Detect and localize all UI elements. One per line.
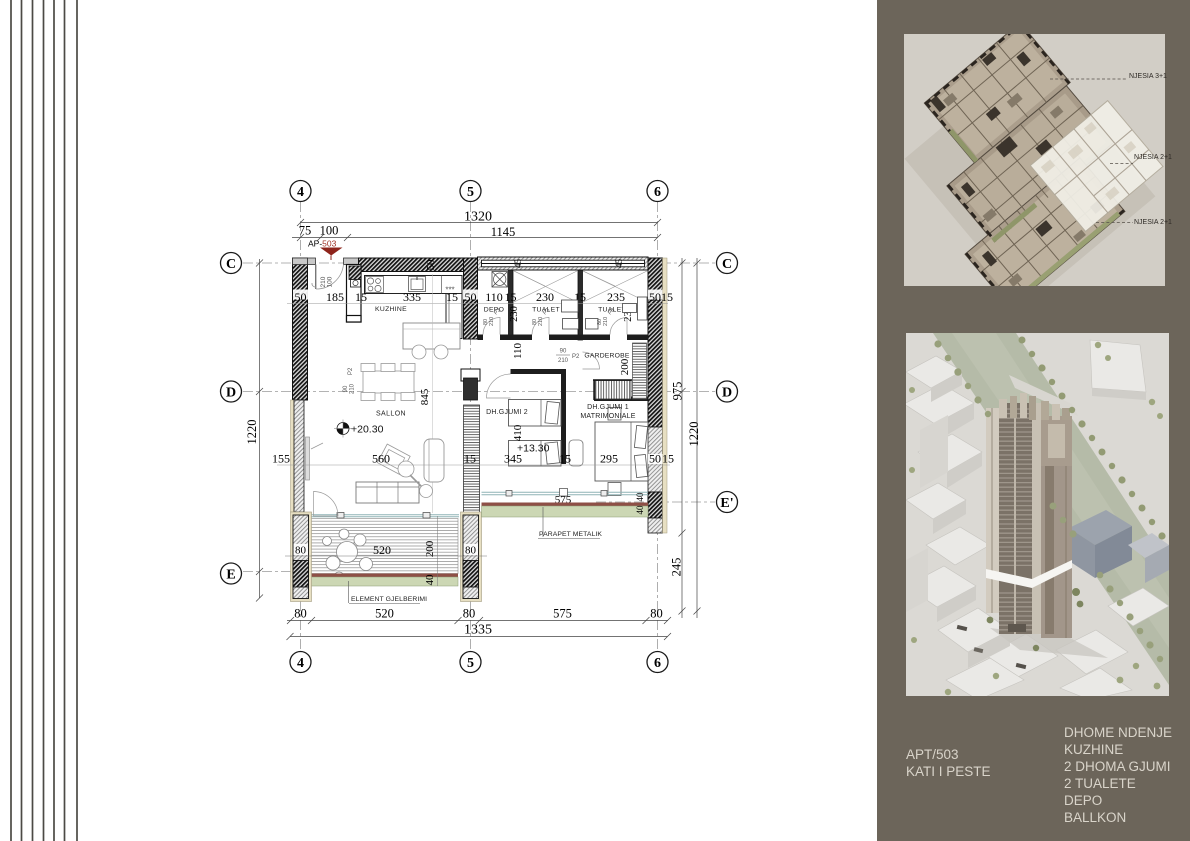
svg-text:560: 560 [372,452,390,466]
svg-text:185: 185 [326,290,344,304]
svg-text:50: 50 [649,452,661,466]
svg-text:40: 40 [424,574,436,586]
svg-text:845: 845 [419,388,431,405]
svg-text:MATRIMONIALE: MATRIMONIALE [580,413,635,420]
svg-text:235: 235 [607,290,625,304]
svg-text:DHOME NDENJE: DHOME NDENJE [1064,725,1172,740]
svg-text:90: 90 [343,385,349,392]
svg-text:6: 6 [654,185,661,200]
svg-text:295: 295 [600,452,618,466]
svg-text:NJESIA 3+1: NJESIA 3+1 [1129,73,1167,80]
svg-text:KUZHINE: KUZHINE [1064,742,1123,757]
svg-text:PARAPET METALIK: PARAPET METALIK [539,531,602,538]
svg-text:80: 80 [465,545,477,557]
svg-text:6: 6 [654,656,661,671]
svg-text:40: 40 [635,492,645,502]
svg-text:4: 4 [297,656,304,671]
svg-text:E': E' [720,496,733,511]
svg-text:50: 50 [425,259,437,271]
svg-text:100: 100 [327,276,334,287]
svg-text:45: 45 [614,259,624,269]
svg-text:D: D [226,386,236,401]
svg-text:ELEMENT GJELBERIMI: ELEMENT GJELBERIMI [351,596,427,603]
svg-text:80: 80 [294,607,307,621]
svg-text:410: 410 [512,424,524,441]
svg-text:210: 210 [603,317,609,326]
svg-text:AP-503: AP-503 [308,239,337,249]
svg-text:80: 80 [295,545,307,557]
svg-text:90: 90 [560,349,567,355]
svg-text:230: 230 [509,306,520,322]
svg-text:230: 230 [536,290,554,304]
svg-text:C: C [226,257,236,272]
svg-text:110: 110 [485,290,503,304]
svg-text:DEPO: DEPO [1064,793,1102,808]
svg-text:210: 210 [558,358,569,364]
svg-text:575: 575 [553,607,572,621]
svg-text:40: 40 [635,505,645,515]
svg-text:200: 200 [424,540,436,557]
svg-text:GARDEROBE: GARDEROBE [584,353,629,360]
svg-text:DH.GJUMI 1: DH.GJUMI 1 [587,404,629,411]
svg-text:KUZHINE: KUZHINE [375,306,407,313]
svg-text:BALLKON: BALLKON [1064,810,1126,825]
svg-text:100: 100 [320,224,339,238]
svg-text:210: 210 [350,383,356,394]
svg-text:75: 75 [299,224,312,238]
svg-text:15: 15 [661,290,673,304]
svg-text:5: 5 [467,656,474,671]
svg-text:50: 50 [295,290,307,304]
svg-text:NJESIA 2+1: NJESIA 2+1 [1134,219,1172,226]
svg-text:P2: P2 [348,367,354,375]
svg-text:SALLON: SALLON [376,411,406,418]
svg-text:NJESIA 2+1: NJESIA 2+1 [1134,154,1172,161]
svg-text:210: 210 [538,317,544,326]
svg-text:50: 50 [649,290,661,304]
svg-text:E: E [226,568,235,583]
svg-text:15: 15 [662,452,674,466]
svg-text:1335: 1335 [464,623,492,638]
svg-text:975: 975 [671,382,685,401]
svg-text:KATI I PESTE: KATI I PESTE [906,764,991,779]
svg-text:80: 80 [463,607,476,621]
svg-text:520: 520 [375,607,394,621]
svg-text:15: 15 [446,290,458,304]
svg-text:110: 110 [512,342,524,359]
svg-text:45: 45 [513,259,523,269]
svg-text:50: 50 [465,290,477,304]
svg-text:P2: P2 [572,354,580,360]
svg-text:1220: 1220 [245,420,259,445]
svg-text:APT/503: APT/503 [906,747,959,762]
svg-text:4: 4 [297,185,304,200]
svg-text:520: 520 [373,543,391,557]
svg-text:80: 80 [650,607,663,621]
svg-text:15: 15 [559,452,571,466]
svg-text:15: 15 [464,452,476,466]
svg-text:15: 15 [355,290,367,304]
svg-text:DH.GJUMI 2: DH.GJUMI 2 [486,409,528,416]
svg-text:D: D [722,386,732,401]
svg-text:200: 200 [619,358,631,375]
svg-text:245: 245 [670,558,684,577]
svg-text:2 DHOMA GJUMI: 2 DHOMA GJUMI [1064,759,1171,774]
svg-text:335: 335 [403,290,421,304]
svg-text:210: 210 [489,317,495,326]
svg-text:5: 5 [467,185,474,200]
svg-text:2 TUALETE: 2 TUALETE [1064,776,1136,791]
svg-text:1220: 1220 [687,422,701,447]
svg-text:155: 155 [272,452,290,466]
svg-text:C: C [722,257,732,272]
svg-text:+20.30: +20.30 [351,424,384,436]
svg-text:345: 345 [504,452,522,466]
svg-text:1145: 1145 [491,225,516,239]
svg-text:1320: 1320 [464,210,492,225]
